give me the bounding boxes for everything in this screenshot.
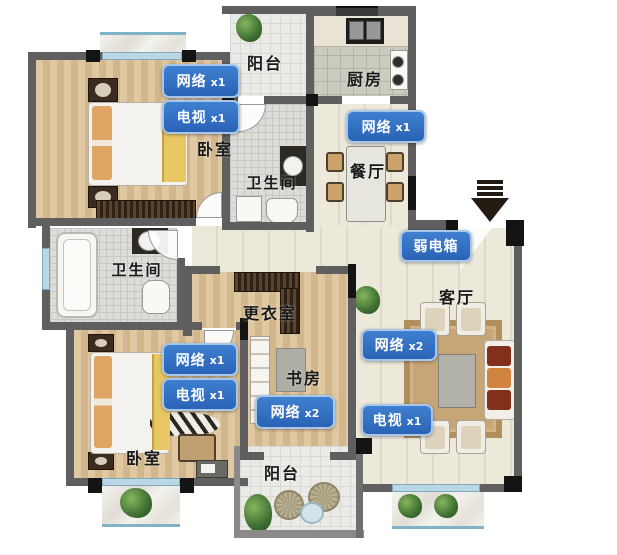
nightstand (88, 78, 118, 102)
port-type: 网络 (271, 402, 301, 422)
washing-machine (236, 196, 262, 222)
armchair (456, 420, 486, 454)
wall-corner-block (88, 478, 102, 493)
balcony-table (300, 502, 324, 524)
port-count: x1 (210, 354, 225, 367)
wall-segment (222, 222, 314, 230)
port-type: 网络 (177, 71, 207, 91)
wall-segment (514, 220, 522, 492)
room-label-dining: 餐厅 (336, 158, 400, 182)
room-label-dressing: 更衣室 (228, 300, 312, 324)
wall-segment (240, 452, 264, 460)
wall-corner-block (86, 50, 100, 62)
kitchen-window (336, 6, 378, 16)
port-count: x1 (396, 121, 411, 134)
coffee-table (438, 354, 476, 408)
sink-basin (366, 21, 381, 40)
wall-corner-block (306, 94, 318, 106)
dining-chair (386, 182, 404, 202)
wall-segment (28, 218, 196, 226)
wall-segment (306, 6, 314, 232)
floor-plan: 阳台 厨房 卧室 卫生间 餐厅 卫生间 更衣室 客厅 书房 卧室 阳台 网络 x… (0, 0, 617, 555)
wall-segment (183, 266, 192, 336)
room-label-bedroom-top-left: 卧室 (183, 136, 247, 160)
weak-current-box-label: 弱电箱 (400, 230, 472, 262)
wall-segment (356, 446, 363, 538)
bed-pillows (94, 356, 112, 448)
nightstand (88, 452, 114, 470)
room-label-bathroom-top: 卫生间 (232, 172, 312, 193)
wall-corner-block (408, 176, 416, 210)
toilet (142, 280, 170, 314)
plant (398, 494, 422, 518)
port-type: 网络 (375, 335, 405, 355)
bed-pillows (92, 106, 112, 180)
entrance-arrow-icon (477, 192, 503, 196)
wall-segment (192, 266, 220, 274)
sofa-cushion (487, 368, 511, 388)
port-label-network: 网络 x2 (255, 395, 335, 429)
port-type: 弱电箱 (414, 236, 459, 256)
room-label-study: 书房 (272, 365, 336, 389)
port-label-tv: 电视 x1 (162, 100, 240, 134)
wall-segment (222, 6, 314, 14)
wall-segment (416, 220, 446, 230)
room-label-bathroom-left: 卫生间 (95, 259, 179, 280)
wall-corner-block (180, 478, 194, 493)
port-count: x1 (210, 389, 225, 402)
wall-segment (240, 322, 248, 460)
balcony-rail (234, 446, 240, 536)
wall-segment (390, 96, 408, 104)
port-count: x1 (407, 415, 422, 428)
plant (354, 286, 380, 314)
wall-corner-block (182, 50, 196, 62)
wall-corner-block (446, 220, 458, 230)
plant (120, 488, 152, 518)
port-label-network: 网络 x1 (162, 64, 240, 98)
balcony-rail (234, 530, 364, 538)
plant (434, 494, 458, 518)
port-label-tv: 电视 x1 (162, 378, 238, 411)
port-type: 电视 (177, 107, 207, 127)
wall-segment (316, 266, 348, 274)
port-count: x2 (305, 407, 320, 420)
room-label-kitchen: 厨房 (333, 66, 397, 90)
port-type: 电视 (373, 410, 403, 430)
wall-corner-block (356, 438, 372, 454)
room-label-balcony-top: 阳台 (235, 50, 295, 74)
sofa-cushion (487, 390, 511, 410)
window (392, 484, 480, 492)
bathtub (56, 232, 98, 318)
wall-segment (330, 452, 356, 460)
sink-basin (349, 21, 364, 40)
room-label-bedroom-bottom-left: 卧室 (112, 445, 176, 469)
entrance-arrow-icon (477, 180, 503, 184)
port-type: 网络 (362, 117, 392, 137)
port-label-tv: 电视 x1 (361, 404, 433, 436)
nightstand (88, 334, 114, 352)
window (42, 248, 50, 290)
desk-with-laptop (196, 460, 228, 478)
port-label-network: 网络 x1 (162, 343, 238, 376)
port-type: 网络 (176, 350, 206, 370)
wall-corner-block (504, 476, 522, 492)
room-label-living: 客厅 (425, 284, 489, 308)
wall-segment (66, 478, 88, 486)
plant (244, 494, 272, 532)
sofa-cushion (487, 346, 511, 366)
room-label-balcony-bottom: 阳台 (250, 460, 314, 484)
wall-segment (28, 52, 36, 228)
port-type: 电视 (176, 385, 206, 405)
toilet (266, 198, 298, 224)
dining-chair (326, 182, 344, 202)
port-label-network: 网络 x2 (361, 329, 437, 361)
wall-corner-block (506, 220, 524, 246)
wall-segment (66, 322, 74, 486)
window (102, 52, 182, 60)
bench (178, 434, 216, 462)
port-label-network: 网络 x1 (346, 110, 426, 143)
wall-corner-block (348, 264, 356, 298)
wardrobe (96, 200, 196, 220)
plant (236, 14, 262, 42)
entrance-arrow-icon (477, 186, 503, 190)
entrance-arrow-icon (471, 198, 509, 222)
port-count: x2 (409, 340, 424, 353)
window (102, 478, 180, 486)
wall-segment (362, 484, 392, 492)
port-count: x1 (211, 112, 226, 125)
port-count: x1 (211, 76, 226, 89)
